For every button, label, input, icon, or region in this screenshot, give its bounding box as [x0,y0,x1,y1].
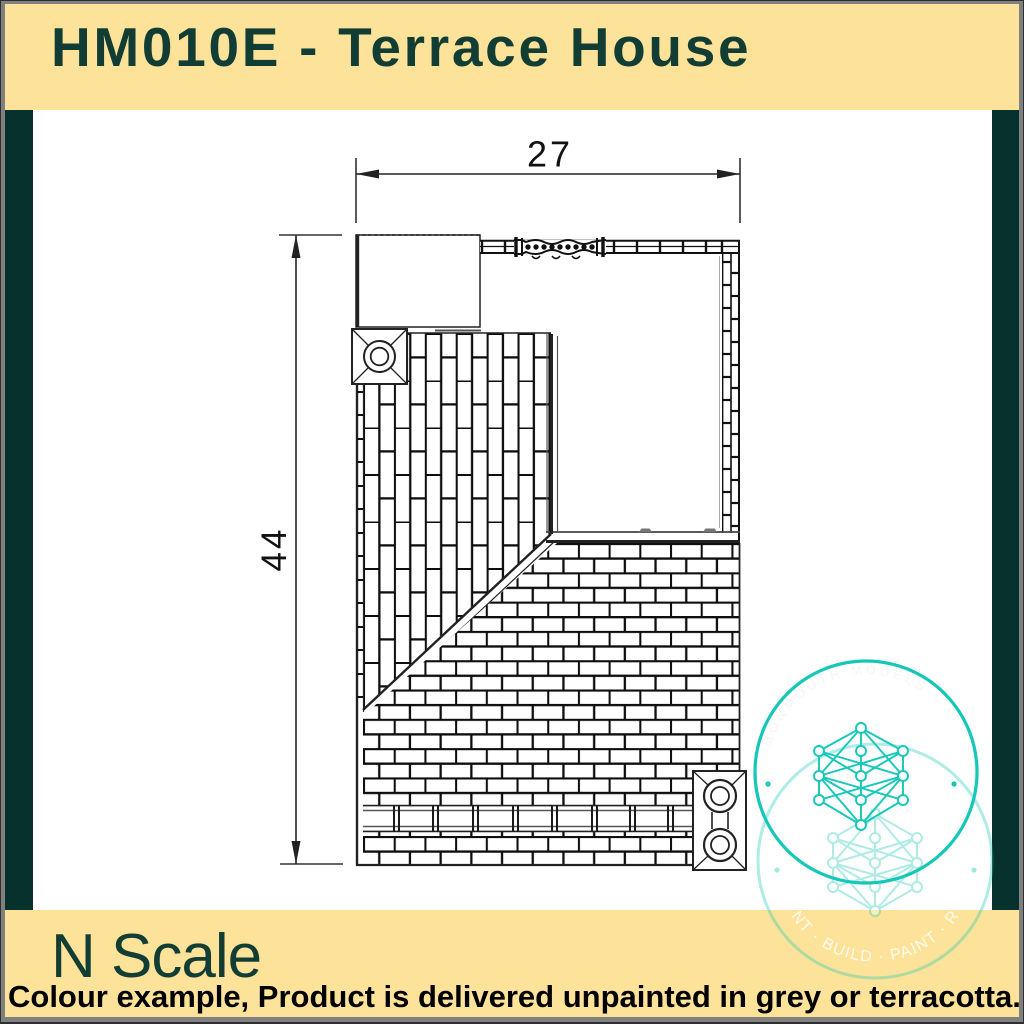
svg-text:NT · BUILD · PAINT · REPAIR: NT · BUILD · PAINT · REPAIR [0,0,963,966]
